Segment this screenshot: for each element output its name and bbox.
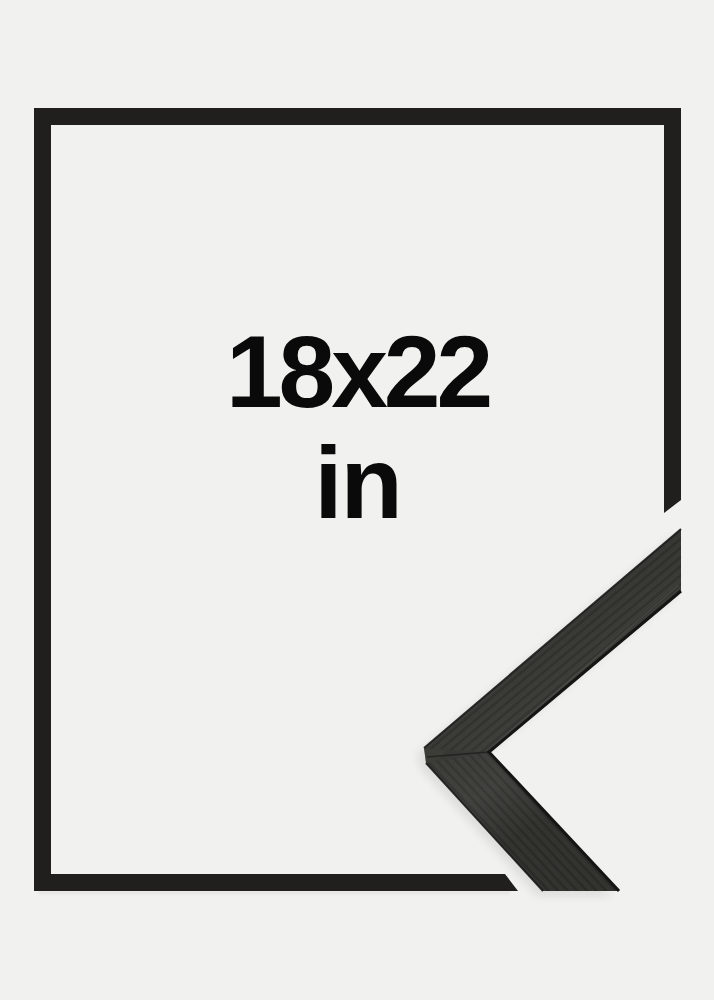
frame-outline-top	[34, 108, 681, 125]
frame-outline-right	[664, 108, 681, 513]
frame-size-product-image: 18x22 in	[0, 0, 714, 1000]
size-label-block: 18x22 in	[51, 321, 664, 534]
outline-bottom-shadow	[38, 891, 510, 894]
unit-label: in	[51, 432, 664, 534]
size-label: 18x22	[51, 321, 664, 423]
frame-outline-left	[34, 108, 51, 891]
frame-outline-bottom	[34, 874, 518, 891]
